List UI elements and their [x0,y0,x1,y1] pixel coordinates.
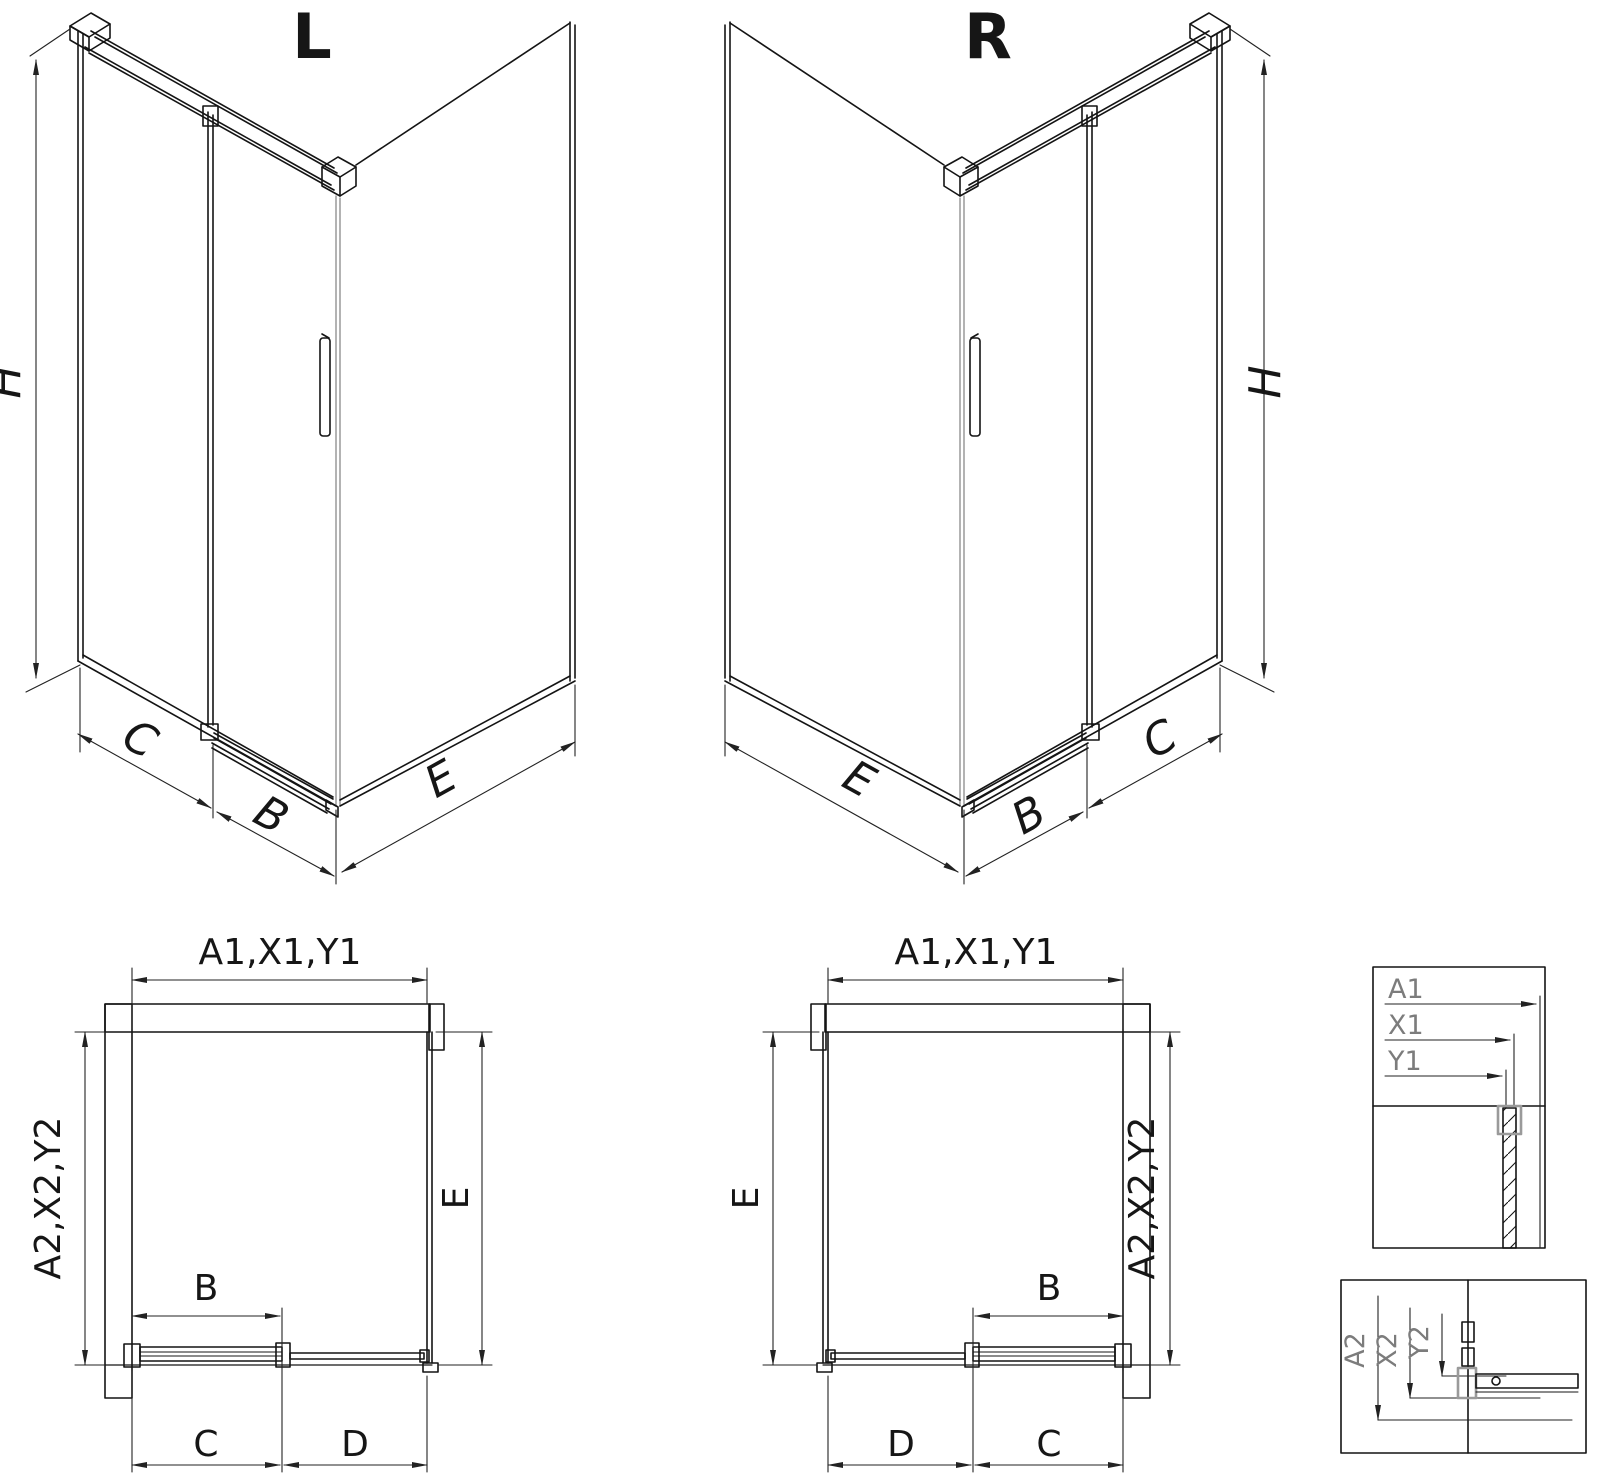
detail-depth-label-a: A2 [1340,1332,1371,1368]
iso-left-dim-fixed: C [114,710,166,770]
plan-right-dim-door: B [1037,1268,1062,1309]
iso-left-dim-height: H [0,365,31,398]
plan-left-dim-depth-total: A2,X2,Y2 [28,1117,69,1280]
detail-width-label-a: A1 [1388,974,1424,1005]
iso-right-dim-door: B [1003,786,1054,845]
iso-view-left-variant: L H C B E [0,0,660,900]
plan-view-left-variant: A1,X1,Y1 A2,X2,Y2 B C D E [30,920,650,1474]
detail-width-label-y: Y1 [1387,1046,1422,1077]
plan-right-dim-width-total: A1,X1,Y1 [895,932,1058,973]
enclosure-outline-left [26,13,575,884]
iso-right-title: R [964,0,1012,73]
plan-left-dim-opening: D [341,1424,369,1465]
enclosure-outline-right [725,13,1274,884]
detail-width-label-x: X1 [1388,1010,1424,1041]
detail-depth-label-y: Y2 [1404,1325,1435,1360]
iso-view-right-variant: R H C B E [680,0,1300,900]
iso-left-dim-side: E [416,750,465,808]
plan-left-geometry [75,968,492,1472]
plan-view-right-variant: A1,X1,Y1 E B D C A2,X2,Y2 [680,920,1300,1474]
dimension-detail-views: A1 X1 Y1 A2 X2 Y2 [1300,930,1600,1474]
plan-left-dim-door: B [194,1268,219,1309]
plan-left-dim-side: E [436,1187,477,1210]
plan-left-dim-width-total: A1,X1,Y1 [199,932,362,973]
iso-right-dim-fixed: C [1134,709,1186,769]
iso-left-title: L [292,0,332,73]
plan-right-dim-side: E [726,1187,767,1210]
iso-left-dim-door: B [245,786,296,845]
plan-right-dim-fixed: C [1036,1424,1061,1465]
iso-right-dim-height: H [1240,365,1291,398]
shower-enclosure-technical-drawing: L H C B E R H C B E A1,X1,Y1 A2,X2,Y2 B … [0,0,1600,1474]
plan-left-dim-fixed: C [193,1424,218,1465]
plan-right-dim-opening: D [887,1424,915,1465]
iso-right-dim-side: E [835,750,884,808]
plan-right-geometry [763,968,1180,1472]
plan-right-dim-depth-total: A2,X2,Y2 [1122,1117,1163,1280]
detail-depth-label-x: X2 [1372,1332,1403,1368]
